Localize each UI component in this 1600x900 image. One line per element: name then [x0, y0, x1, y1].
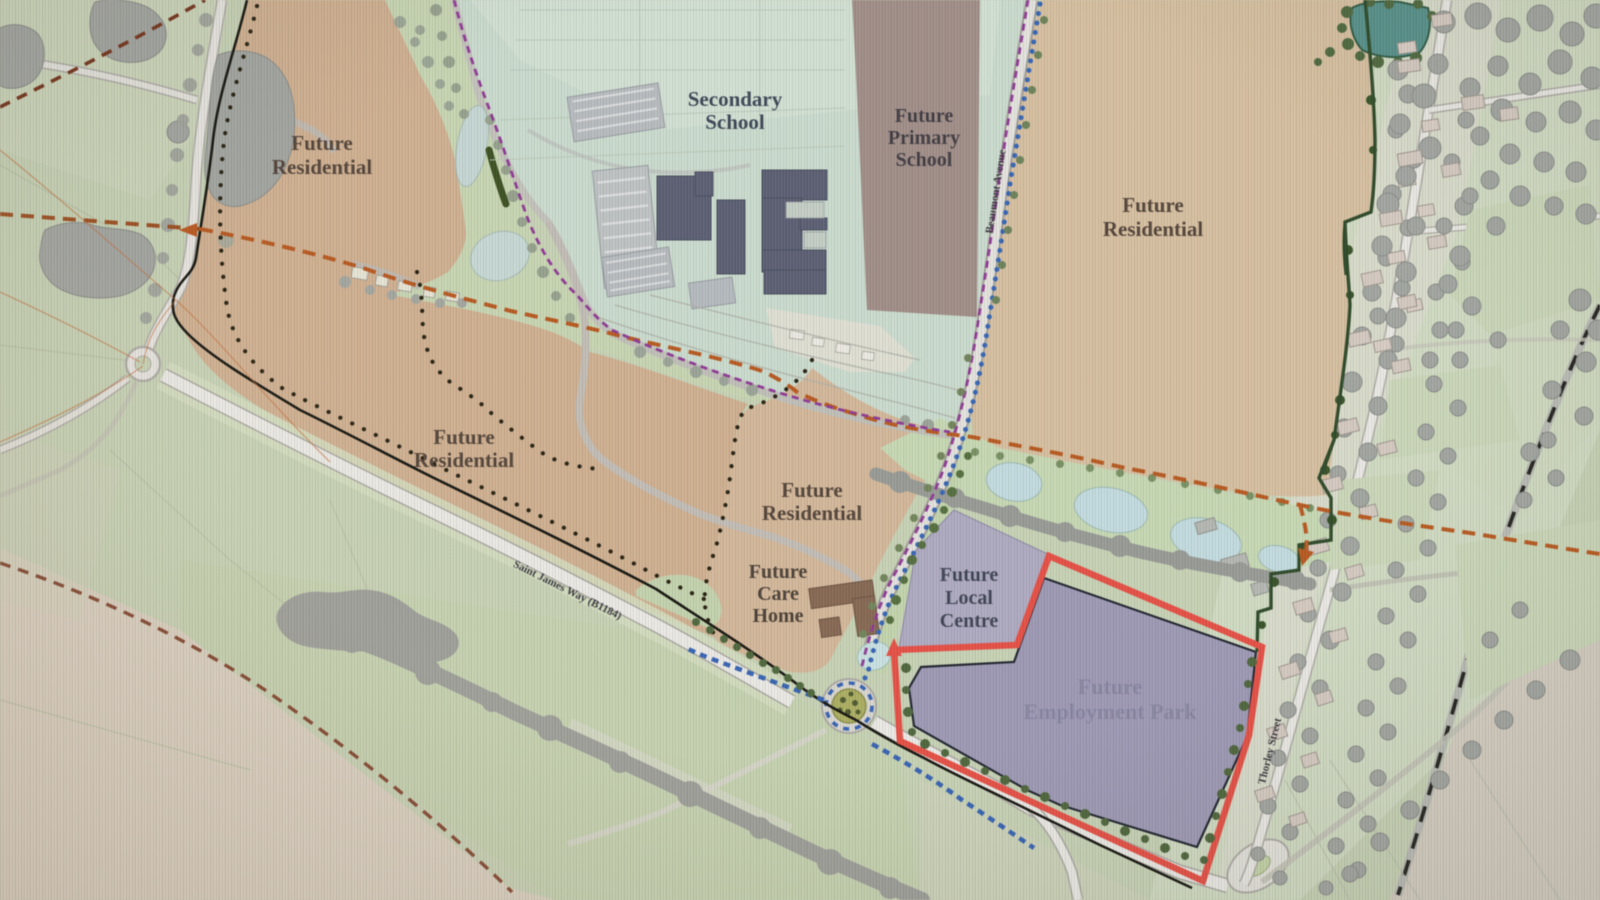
svg-text:Future: Future: [781, 478, 842, 502]
svg-text:Future: Future: [895, 105, 954, 127]
svg-text:Centre: Centre: [940, 610, 999, 632]
svg-text:Employment Park: Employment Park: [1024, 699, 1198, 724]
svg-text:Home: Home: [752, 605, 803, 627]
svg-text:School: School: [705, 110, 765, 134]
svg-text:Residential: Residential: [414, 448, 515, 472]
svg-text:Local: Local: [945, 587, 993, 609]
svg-text:Residential: Residential: [272, 155, 373, 179]
svg-text:School: School: [896, 149, 953, 171]
svg-text:Care: Care: [757, 583, 799, 605]
svg-text:Residential: Residential: [1103, 217, 1204, 241]
svg-text:Future: Future: [1078, 674, 1143, 699]
svg-text:Future: Future: [940, 564, 999, 586]
svg-text:Future: Future: [291, 131, 352, 155]
svg-text:Residential: Residential: [762, 501, 863, 525]
svg-text:Future: Future: [1122, 193, 1183, 217]
svg-text:Future: Future: [433, 425, 494, 449]
svg-text:Secondary: Secondary: [688, 87, 783, 111]
svg-text:Primary: Primary: [888, 127, 960, 149]
svg-text:Future: Future: [749, 561, 808, 583]
